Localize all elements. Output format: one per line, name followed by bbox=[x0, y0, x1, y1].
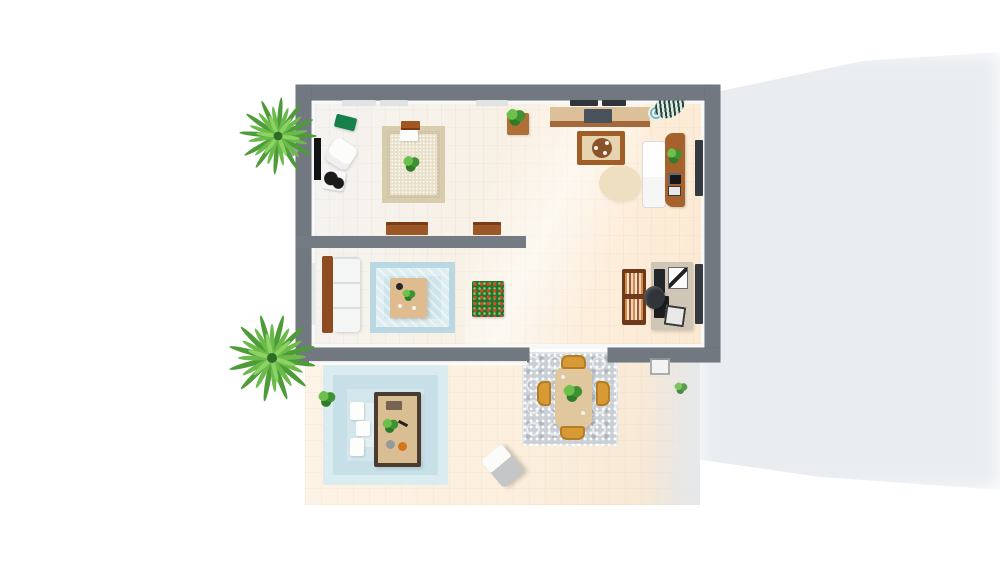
window-dark bbox=[570, 100, 598, 106]
patio-wall-sill bbox=[309, 361, 527, 365]
sofa-console bbox=[401, 121, 420, 130]
window-dark bbox=[602, 100, 626, 106]
plate bbox=[398, 304, 402, 308]
white-coffee-table bbox=[400, 130, 418, 141]
window-sill bbox=[476, 100, 508, 106]
plate bbox=[594, 146, 598, 150]
rug-plant bbox=[403, 155, 420, 172]
patio-small-plant bbox=[674, 382, 688, 394]
building bbox=[296, 85, 720, 362]
patio-table-bowl-orange bbox=[398, 442, 407, 451]
dining-chair-south bbox=[560, 426, 585, 440]
floor-plan-scene bbox=[0, 0, 1000, 572]
table-fruit bbox=[402, 289, 416, 301]
middle-room-sofa bbox=[322, 256, 360, 333]
sofa-cushions bbox=[333, 257, 360, 332]
artboard bbox=[668, 267, 688, 289]
patio-table-tray bbox=[386, 401, 402, 410]
wall-divider bbox=[296, 236, 526, 248]
cube-seat-1 bbox=[350, 402, 364, 420]
refrigerator bbox=[643, 142, 665, 207]
cow-print-ottoman bbox=[321, 168, 346, 192]
kitchen-island bbox=[577, 131, 625, 165]
wall-east bbox=[705, 85, 720, 362]
dining-centerpiece-plant bbox=[563, 384, 583, 402]
middle-coffee-table bbox=[390, 278, 427, 318]
dining-chair-west bbox=[537, 381, 551, 406]
east-window-top bbox=[695, 140, 703, 196]
shelf-box bbox=[668, 186, 681, 196]
shelf-column bbox=[665, 133, 685, 207]
bookshelf bbox=[622, 269, 646, 325]
east-window-bottom bbox=[695, 264, 703, 324]
round-rug bbox=[599, 165, 641, 201]
wall-console-large bbox=[386, 222, 428, 235]
plate bbox=[603, 151, 607, 155]
patio-table bbox=[374, 392, 421, 467]
patio-table-pen bbox=[398, 420, 408, 427]
window-sill bbox=[380, 100, 408, 106]
patio-table-bowl-gray bbox=[386, 440, 395, 449]
flower-planter bbox=[472, 281, 504, 317]
window-sill bbox=[342, 100, 376, 106]
wall-north bbox=[296, 85, 720, 100]
wall-console-small bbox=[473, 222, 501, 235]
palm-plant-bottom bbox=[222, 308, 322, 408]
kitchen-counter bbox=[550, 107, 650, 127]
books-row bbox=[625, 299, 643, 320]
office-chair bbox=[644, 286, 665, 309]
palm-plant-top bbox=[234, 92, 322, 180]
sofa-wood-back bbox=[322, 256, 333, 333]
shelf-plant bbox=[667, 147, 682, 164]
place-setting bbox=[561, 375, 565, 379]
desk-book bbox=[664, 305, 687, 328]
door-threshold bbox=[650, 358, 670, 375]
patio-dining-table bbox=[555, 367, 592, 428]
dining-chair-east bbox=[596, 381, 610, 406]
building-cast-shadow bbox=[698, 52, 1000, 490]
table-bowl bbox=[396, 283, 403, 290]
cube-seat-2 bbox=[356, 421, 370, 436]
plant-stand-plant bbox=[506, 108, 526, 126]
plate bbox=[412, 306, 416, 310]
place-setting bbox=[581, 411, 585, 415]
cooktop bbox=[584, 109, 612, 123]
shelf-gadget bbox=[668, 173, 681, 184]
wall-south-left bbox=[296, 348, 529, 362]
patio-table-plant bbox=[382, 418, 399, 433]
patio-shadow-fade bbox=[640, 358, 700, 505]
books-row bbox=[625, 273, 643, 294]
plate bbox=[605, 141, 609, 145]
island-tray bbox=[592, 138, 612, 158]
cube-seat-3 bbox=[350, 438, 364, 456]
